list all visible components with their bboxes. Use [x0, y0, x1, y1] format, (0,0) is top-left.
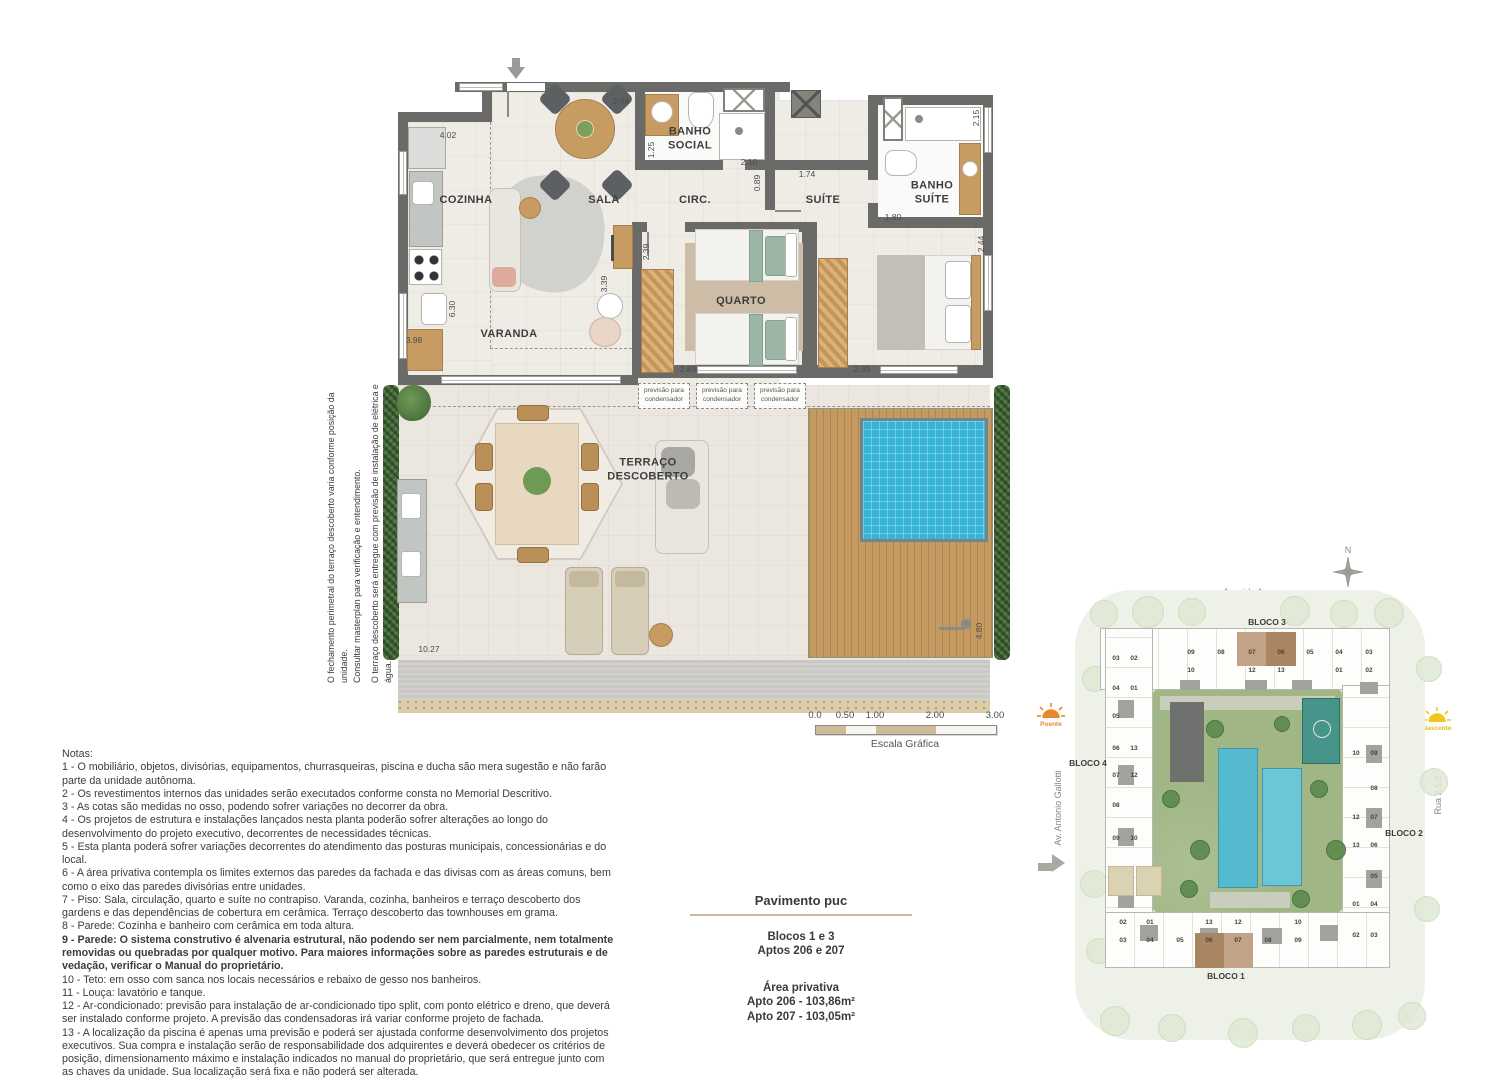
condenser-note: previsão para condensador: [696, 383, 748, 409]
bed1-green-pillow: [765, 236, 787, 276]
tree-icon: [1162, 790, 1180, 808]
dimension-label: 2.89: [671, 364, 705, 374]
terrace-chair: [581, 443, 599, 471]
unit-number: 01: [1141, 918, 1159, 928]
unit-number: 13: [1347, 841, 1365, 851]
room-label-circ: CIRC.: [679, 194, 711, 208]
terrace-chair: [517, 405, 549, 421]
unit-number: 05: [1171, 936, 1189, 946]
unit-number: 02: [1125, 654, 1143, 664]
tree-icon: [1414, 896, 1440, 922]
lounger-headrest: [615, 571, 645, 587]
scale-tick: 0.50: [828, 710, 862, 721]
wall-kitchen-top: [398, 112, 492, 122]
tree-icon: [1190, 840, 1210, 860]
unit-number: 12: [1125, 771, 1143, 781]
wall-hall-right-b: [765, 170, 775, 210]
info-area-206: Apto 206 - 103,86m²: [690, 995, 912, 1009]
dimension-label: 2.39: [641, 235, 651, 269]
dimension-label: 4.80: [974, 614, 984, 648]
scale-tick: 3.00: [978, 710, 1012, 721]
scale-seg: [876, 726, 936, 734]
unit-number: 09: [1182, 648, 1200, 658]
unit-number: 07: [1365, 813, 1383, 823]
unit-number: 07: [1243, 648, 1261, 658]
wall-bedroom-suite-divider: [802, 222, 817, 378]
terrace-table-plant: [523, 467, 551, 495]
compass-rose-icon: [1332, 556, 1364, 588]
sofa-pillow: [492, 267, 516, 287]
bath-suite-window: [984, 107, 992, 153]
note-item: 13 - A localização da piscina é apenas u…: [62, 1027, 618, 1080]
unit-number: 12: [1243, 666, 1261, 676]
suite-headboard: [971, 255, 981, 350]
side-note-line: Consultar masterplan para verificação e …: [351, 383, 364, 683]
note-item: 3 - As cotas são medidas no osso, podend…: [62, 801, 618, 814]
armchair: [589, 317, 621, 347]
unit-number: 13: [1125, 744, 1143, 754]
bath-suite-shower: [905, 107, 981, 141]
unit-number: 02: [1114, 918, 1132, 928]
terrace-chair: [475, 443, 493, 471]
wall-bath-suite-left-a: [868, 95, 878, 180]
unit-number: 12: [1229, 918, 1247, 928]
unit-number: 04: [1365, 900, 1383, 910]
unit-number: 07: [1229, 936, 1247, 946]
bloco-4-label: BLOCO 4: [1069, 758, 1107, 768]
bath-social-sink: [651, 101, 673, 123]
terrace-chair: [581, 483, 599, 511]
suite-wardrobe: [818, 258, 848, 368]
bloco-2-label: BLOCO 2: [1385, 828, 1423, 838]
entry-door-opening: [507, 83, 545, 91]
dimension-label: 6.30: [447, 292, 457, 326]
tree-icon: [1292, 890, 1310, 908]
access-arrow-icon: [1052, 854, 1065, 872]
tree-icon: [1330, 600, 1358, 628]
clubhouse-building: [1170, 702, 1204, 782]
bloco-3-label: BLOCO 3: [1248, 617, 1286, 627]
wall-bedroom-top-a: [632, 222, 647, 232]
scale-tick: 0.0: [798, 710, 832, 721]
dimension-label: 1.80: [876, 212, 910, 222]
circulation-core: [1360, 682, 1378, 694]
terrace-setback-line: [398, 406, 990, 407]
unit-number: 05: [1365, 872, 1383, 882]
dimension-label: 2.44: [976, 227, 986, 261]
sunset-west-icon: [1036, 702, 1066, 720]
bath-social-shaft: [723, 88, 765, 112]
tree-icon: [1090, 600, 1118, 628]
lounger-headrest: [569, 571, 599, 587]
unit-number: 10: [1347, 749, 1365, 759]
living-balcony-divider: [490, 348, 632, 349]
note-item: 5 - Esta planta poderá sofrer variações …: [62, 841, 618, 868]
note-item: 11 - Louça: lavatório e tanque.: [62, 987, 618, 1000]
dimension-label: 3.98: [397, 335, 431, 345]
dimension-label: 0.89: [752, 166, 762, 200]
info-aptos: Aptos 206 e 207: [690, 944, 912, 958]
architectural-sheet: COZINHA SALA CIRC. SUÍTE BANHO SOCIAL BA…: [0, 0, 1512, 1080]
unit-number: 13: [1200, 918, 1218, 928]
entry-window: [459, 83, 503, 91]
unit-number: 08: [1212, 648, 1230, 658]
unit-number: 03: [1107, 654, 1125, 664]
unit-number: 12: [1347, 813, 1365, 823]
wall-hall-right-a: [765, 82, 775, 170]
unit-number: 13: [1272, 666, 1290, 676]
site-key-plan: Avenida 1 Rua 2.5.1 Rua 2.5.2 Av. Antoni…: [1030, 540, 1512, 1080]
room-label-cozinha: COZINHA: [440, 194, 493, 208]
dimension-label: 1.74: [790, 169, 824, 179]
room-label-banho-social: BANHO SOCIAL: [668, 125, 712, 153]
court-center-circle: [1313, 720, 1331, 738]
entry-door-leaf: [507, 91, 509, 117]
suite-window: [984, 255, 992, 311]
scale-seg: [936, 726, 996, 734]
kitchen-sink: [412, 181, 434, 205]
note-item: 6 - A área privativa contempla os limite…: [62, 867, 618, 894]
hedge-right: [994, 385, 1010, 660]
bath-social-shower: [719, 113, 765, 160]
stove: [409, 249, 442, 285]
unit-number: 04: [1107, 684, 1125, 694]
tv-console: [613, 225, 633, 269]
suite-pillow-2: [945, 305, 971, 343]
tree-icon: [1228, 1018, 1258, 1048]
tree-icon: [1292, 1014, 1320, 1042]
note-item: 2 - Os revestimentos internos das unidad…: [62, 788, 618, 801]
unit-number: 01: [1330, 666, 1348, 676]
dimension-label: 2.99: [845, 364, 879, 374]
kitchen-window: [399, 151, 407, 195]
unit-number: 10: [1182, 666, 1200, 676]
tree-icon: [1100, 1006, 1130, 1036]
dimension-label: 1.25: [646, 133, 656, 167]
scale-label: Escala Gráfica: [815, 738, 995, 750]
tree-icon: [1352, 1010, 1382, 1040]
entry-arrow-stem: [512, 58, 520, 67]
unit-number: 03: [1360, 648, 1378, 658]
scale-tick: 2.00: [918, 710, 952, 721]
note-item: 12 - Ar-condicionado: previsão para inst…: [62, 1000, 618, 1027]
bath-suite-sink: [962, 161, 978, 177]
tree-icon: [1180, 880, 1198, 898]
sunrise-east-icon: [1422, 706, 1452, 724]
tree-icon: [1374, 598, 1404, 628]
circulation-core: [1320, 925, 1338, 941]
showerhead-icon: [915, 115, 923, 123]
info-area-title: Área privativa: [690, 981, 912, 995]
unit-number: 01: [1347, 900, 1365, 910]
bed1-runner: [749, 230, 763, 282]
dimension-label: 3.39: [599, 267, 609, 301]
info-title: Pavimento puc: [690, 893, 912, 908]
tree-icon: [1416, 656, 1442, 682]
scale-seg: [846, 726, 876, 734]
unit-number: 10: [1125, 834, 1143, 844]
unit-number: 04: [1330, 648, 1348, 658]
unit-number: 03: [1365, 931, 1383, 941]
notes-title: Notas:: [62, 748, 618, 761]
condenser-note: previsão para condensador: [638, 383, 690, 409]
plan-side-notes: O fechamento perimetral do terraço desco…: [325, 383, 395, 683]
terrace-side-table: [649, 623, 673, 647]
info-blocks: Blocos 1 e 3: [690, 930, 912, 944]
outdoor-shower-icon: [961, 619, 971, 629]
scale-seg: [816, 726, 846, 734]
room-label-varanda: VARANDA: [481, 328, 538, 342]
washer: [421, 293, 447, 325]
notes-block: Notas: 1 - O mobiliário, objetos, divisó…: [62, 748, 618, 1080]
sun-west-label: Poente: [1040, 721, 1062, 728]
bed1-pillow: [785, 233, 797, 277]
tree-icon: [1420, 768, 1448, 796]
duct-shaft: [791, 90, 821, 118]
bath-suite-shaft: [883, 97, 903, 141]
suite-pillow-1: [945, 261, 971, 299]
suite-glass-door: [880, 366, 958, 374]
bath-suite-counter: [959, 143, 981, 215]
bath-suite-toilet: [885, 150, 917, 176]
scale-tick: 1.00: [858, 710, 892, 721]
unit-number: 10: [1289, 918, 1307, 928]
unit-number: 08: [1259, 936, 1277, 946]
tree-icon: [1310, 780, 1328, 798]
dimension-label: 2.44: [604, 96, 638, 106]
outdoor-shower-arm: [939, 627, 965, 630]
terrace-chair: [475, 483, 493, 511]
showerhead-icon: [735, 127, 743, 135]
tree-icon: [1326, 840, 1346, 860]
side-note-line: O fechamento perimetral do terraço desco…: [325, 383, 351, 683]
unit-number: 09: [1107, 834, 1125, 844]
room-label-terraco: TERRAÇO DESCOBERTO: [607, 456, 688, 484]
sun-east-label: Nascente: [1423, 725, 1452, 732]
side-table: [519, 197, 541, 219]
suite-door-leaf: [775, 210, 801, 212]
tree-icon: [1080, 870, 1108, 898]
note-item: 1 - O mobiliário, objetos, divisórias, e…: [62, 761, 618, 788]
paddle-court: [1108, 866, 1134, 896]
unit-number: 08: [1365, 784, 1383, 794]
note-item: 4 - Os projetos de estrutura e instalaçõ…: [62, 814, 618, 841]
room-label-suite: SUÍTE: [806, 194, 840, 208]
balcony-side-window: [399, 293, 407, 359]
tree-icon: [1132, 596, 1164, 628]
unit-number: 04: [1141, 936, 1159, 946]
notes-list: 1 - O mobiliário, objetos, divisórias, e…: [62, 761, 618, 1079]
unit-number: 09: [1365, 749, 1383, 759]
bloco-1-label: BLOCO 1: [1207, 971, 1245, 981]
tree-icon: [1178, 598, 1206, 626]
unit-number: 07: [1107, 771, 1125, 781]
room-label-banho-suite: BANHO SUÍTE: [911, 179, 953, 207]
dimension-label: 2.15: [971, 101, 981, 135]
unit-number: 02: [1360, 666, 1378, 676]
unit-number: 06: [1272, 648, 1290, 658]
pool: [860, 418, 988, 542]
street-label-left: Av. Antonio Gallotti: [1053, 770, 1063, 845]
unit-number: 01: [1125, 684, 1143, 694]
unit-number: 05: [1301, 648, 1319, 658]
unit-number: 06: [1200, 936, 1218, 946]
unit-number: 06: [1365, 841, 1383, 851]
tree-icon: [1158, 1014, 1186, 1042]
bath-social-toilet: [688, 92, 714, 128]
bed2-runner: [749, 314, 763, 366]
note-item: 9 - Parede: O sistema construtivo é alve…: [62, 934, 618, 974]
outdoor-sink: [401, 493, 421, 519]
lap-pool: [1218, 748, 1258, 888]
courtyard-deck: [1210, 892, 1290, 908]
entry-arrow-icon: [507, 67, 525, 79]
leisure-pool: [1262, 768, 1302, 886]
beach-strip: [398, 660, 990, 700]
unit-number: 08: [1107, 801, 1125, 811]
unit-number: 06: [1107, 744, 1125, 754]
bed2-pillow: [785, 317, 797, 361]
bedroom-wardrobe: [641, 269, 674, 373]
unit-info-panel: Pavimento puc Blocos 1 e 3 Aptos 206 e 2…: [690, 893, 912, 1024]
scale-bar: [815, 725, 997, 735]
unit-number: 03: [1114, 936, 1132, 946]
bed2-green-pillow: [765, 320, 787, 360]
room-label-sala: SALA: [588, 194, 620, 208]
unit-number: 05: [1107, 712, 1125, 722]
dimension-label: 10.27: [412, 644, 446, 654]
note-item: 8 - Parede: Cozinha e banheiro com cerâm…: [62, 920, 618, 933]
tv: [611, 235, 614, 261]
bed-blanket: [877, 255, 925, 350]
access-arrow-stem: [1038, 863, 1052, 871]
note-item: 10 - Teto: em osso com sanca nos locais …: [62, 974, 618, 987]
graphic-scale: Escala Gráfica 0.00.501.002.003.00: [812, 710, 1012, 756]
paddle-court: [1136, 866, 1162, 896]
terrace-chair: [517, 547, 549, 563]
compass-n-label: N: [1338, 545, 1358, 555]
info-area-207: Apto 207 - 103,05m²: [690, 1010, 912, 1024]
balcony-glass-door: [441, 376, 621, 384]
outdoor-sink: [401, 551, 421, 577]
condenser-note: previsão para condensador: [754, 383, 806, 409]
tree-icon: [1398, 1002, 1426, 1030]
tree-icon: [1206, 720, 1224, 738]
unit-number: 02: [1347, 931, 1365, 941]
table-plant: [577, 121, 593, 137]
bedroom-glass-door: [697, 366, 797, 374]
dimension-label: 4.02: [431, 130, 465, 140]
side-note-line: O terraço descoberto será entregue com p…: [369, 383, 395, 683]
room-label-quarto: QUARTO: [716, 295, 766, 309]
tree-icon: [1274, 716, 1290, 732]
unit-number: 09: [1289, 936, 1307, 946]
note-item: 7 - Piso: Sala, circulação, quarto e suí…: [62, 894, 618, 921]
apartment-floor-plan: COZINHA SALA CIRC. SUÍTE BANHO SOCIAL BA…: [383, 55, 1013, 720]
